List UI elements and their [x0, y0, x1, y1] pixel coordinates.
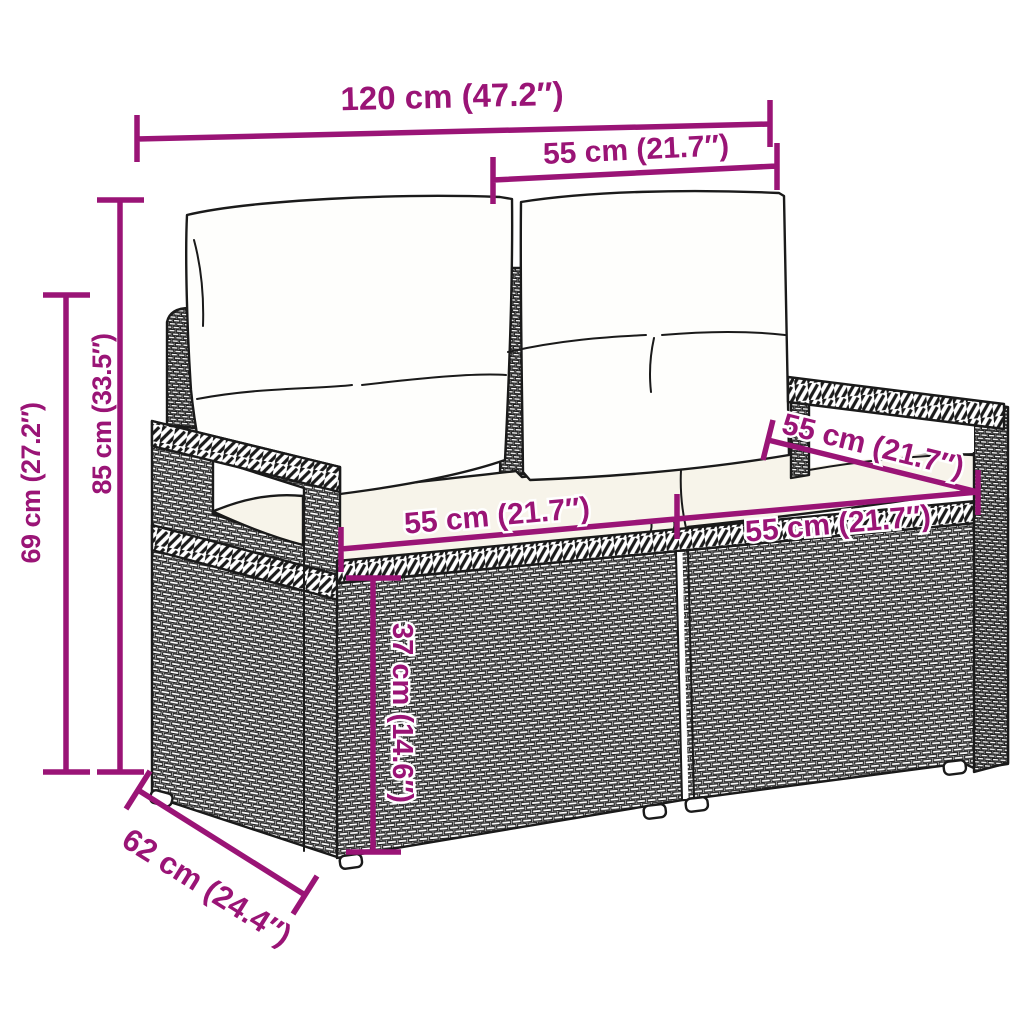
- dim-total-height-label: 85 cm (33.5″): [87, 333, 117, 494]
- dim-total-width-label: 120 cm (47.2″): [340, 75, 564, 117]
- left-armrest: [149, 421, 357, 858]
- dimension-diagram-page: 120 cm (47.2″) 55 cm (21.7″) 85 cm (33.5…: [0, 0, 1024, 1024]
- product-dimension-diagram: 120 cm (47.2″) 55 cm (21.7″) 85 cm (33.5…: [0, 0, 1024, 1024]
- dim-armrest-height: 69 cm (27.2″): [16, 295, 90, 772]
- dim-seat-height-label: 37 cm (14.6″): [386, 623, 418, 803]
- sofa-foot: [643, 804, 666, 820]
- front-right-column: [974, 402, 1008, 772]
- dim-total-height: 85 cm (33.5″): [87, 200, 144, 772]
- sofa-foot: [685, 797, 708, 813]
- seat-base: [337, 498, 1008, 869]
- dim-total-depth-label: 62 cm (24.4″): [116, 821, 298, 953]
- dim-backrest-width-label: 55 cm (21.7″): [542, 129, 730, 171]
- back-cushion-right: [521, 191, 789, 480]
- sofa-foot: [943, 760, 966, 776]
- dim-armrest-height-label: 69 cm (27.2″): [16, 402, 46, 563]
- sofa-foot: [339, 853, 363, 869]
